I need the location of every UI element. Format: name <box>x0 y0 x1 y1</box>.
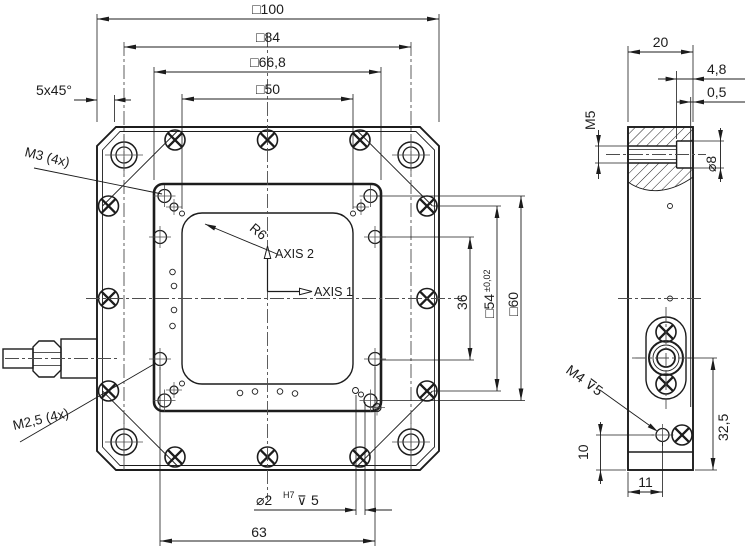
dim-bolt-pattern-label: □84 <box>256 29 280 45</box>
dim-aperture-label: □50 <box>256 81 280 97</box>
axis2-arrowhead <box>264 246 270 259</box>
axis-indicator: AXIS 2 AXIS 1 <box>264 246 353 299</box>
dim-11-label: 11 <box>638 474 653 490</box>
dowel-hole <box>353 388 359 394</box>
side-view: 20 4,8 0,5 M5 ⌀8 M4 ⊽5 32,5 10 11 <box>563 34 745 497</box>
dim-0-5-label: 0,5 <box>707 84 727 100</box>
front-dimensions: □100 □84 □66,8 □50 5x45° M3 (4x) M2,5 (4… <box>11 1 525 546</box>
m5-label: M5 <box>582 110 598 130</box>
dim-outer-label: □100 <box>252 1 284 17</box>
r6-label: R6 <box>247 220 270 243</box>
axis2-label: AXIS 2 <box>275 247 314 261</box>
dim-63-label: 63 <box>251 524 267 540</box>
side-dimensions: 20 4,8 0,5 M5 ⌀8 M4 ⊽5 32,5 10 11 <box>563 34 745 497</box>
m2-5-label: M2,5 (4x) <box>11 405 70 432</box>
dowel-dia-label: ⌀2 <box>256 492 272 508</box>
dowel-depth-label: 5 <box>311 492 319 508</box>
dim-32-5-label: 32,5 <box>715 414 731 441</box>
gland-nut <box>33 341 61 377</box>
axis1-label: AXIS 1 <box>314 285 353 299</box>
m4-label: M4 ⊽5 <box>563 361 606 398</box>
front-view: AXIS 2 AXIS 1 <box>3 1 525 546</box>
dim-20-label: 20 <box>653 34 669 50</box>
m4-leader <box>600 390 651 427</box>
dowel-depth-symbol: ⊽ <box>297 493 307 508</box>
dim-10-label: 10 <box>575 444 591 460</box>
dim-60-label: □60 <box>505 292 521 316</box>
drawing-canvas: AXIS 2 AXIS 1 <box>0 0 750 552</box>
dim-chamfer-label: 5x45° <box>36 82 72 98</box>
dim-4-8-label: 4,8 <box>707 61 727 77</box>
dim-36-label: 36 <box>454 294 470 310</box>
dowel-fit-label: H7 <box>283 490 295 500</box>
dim-dia8-label: ⌀8 <box>703 156 719 172</box>
axis1-arrowhead <box>300 288 313 294</box>
small-holes <box>166 199 385 416</box>
m2-5-leader <box>20 363 156 442</box>
technical-drawing: AXIS 2 AXIS 1 <box>0 0 750 552</box>
m3-label: M3 (4x) <box>23 144 71 170</box>
section-cut <box>628 127 693 191</box>
dowel-hole <box>359 392 364 397</box>
m3-leader <box>34 168 162 194</box>
dim-54-label: □54±0,02 <box>481 270 497 319</box>
dim-plate-label: □66,8 <box>250 54 286 70</box>
